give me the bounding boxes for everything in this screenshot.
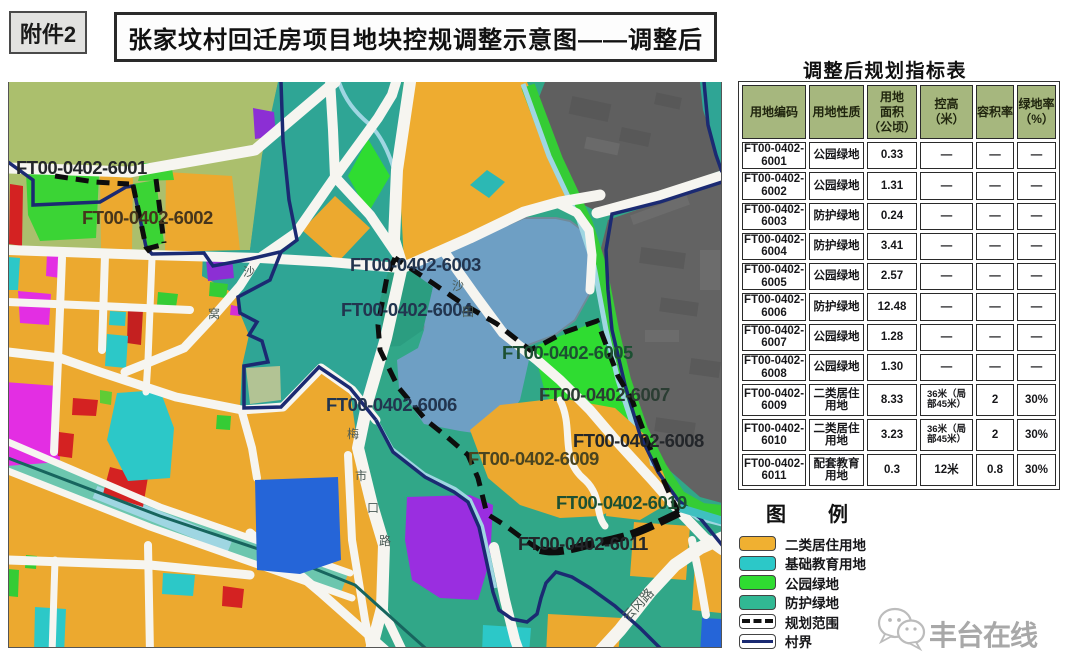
svg-text:沙: 沙: [452, 279, 464, 293]
svg-text:口: 口: [367, 501, 379, 515]
svg-text:路: 路: [379, 533, 391, 548]
svg-text:梅: 梅: [347, 426, 359, 441]
svg-text:FT00-0402-6004: FT00-0402-6004: [341, 299, 473, 320]
svg-text:窝: 窝: [208, 306, 220, 321]
svg-text:FT00-0402-6007: FT00-0402-6007: [539, 384, 670, 405]
svg-text:市: 市: [355, 468, 367, 483]
svg-text:FT00-0402-6005: FT00-0402-6005: [502, 342, 633, 363]
svg-text:FT00-0402-6002: FT00-0402-6002: [82, 207, 213, 228]
svg-text:田: 田: [462, 305, 474, 319]
svg-text:沙: 沙: [243, 265, 255, 279]
svg-text:FT00-0402-6011: FT00-0402-6011: [518, 533, 648, 554]
svg-text:FT00-0402-6003: FT00-0402-6003: [350, 254, 481, 275]
svg-text:FT00-0402-6010: FT00-0402-6010: [556, 492, 687, 513]
svg-text:FT00-0402-6006: FT00-0402-6006: [326, 394, 457, 415]
svg-text:FT00-0402-6009: FT00-0402-6009: [468, 448, 599, 469]
svg-text:FT00-0402-6001: FT00-0402-6001: [16, 157, 147, 178]
